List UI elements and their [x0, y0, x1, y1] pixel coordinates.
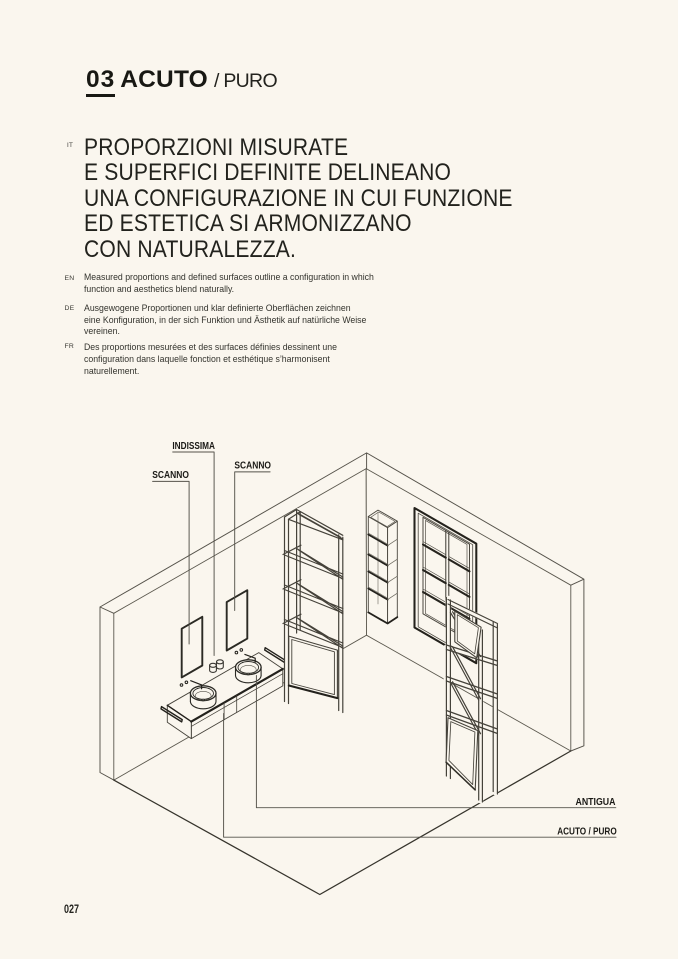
- svg-text:ACUTO / PURO: ACUTO / PURO: [557, 826, 617, 837]
- svg-text:SCANNO: SCANNO: [152, 470, 189, 481]
- svg-text:ANTIGUA: ANTIGUA: [576, 797, 616, 808]
- svg-text:SCANNO: SCANNO: [234, 461, 271, 472]
- svg-text:INDISSIMA: INDISSIMA: [172, 441, 215, 452]
